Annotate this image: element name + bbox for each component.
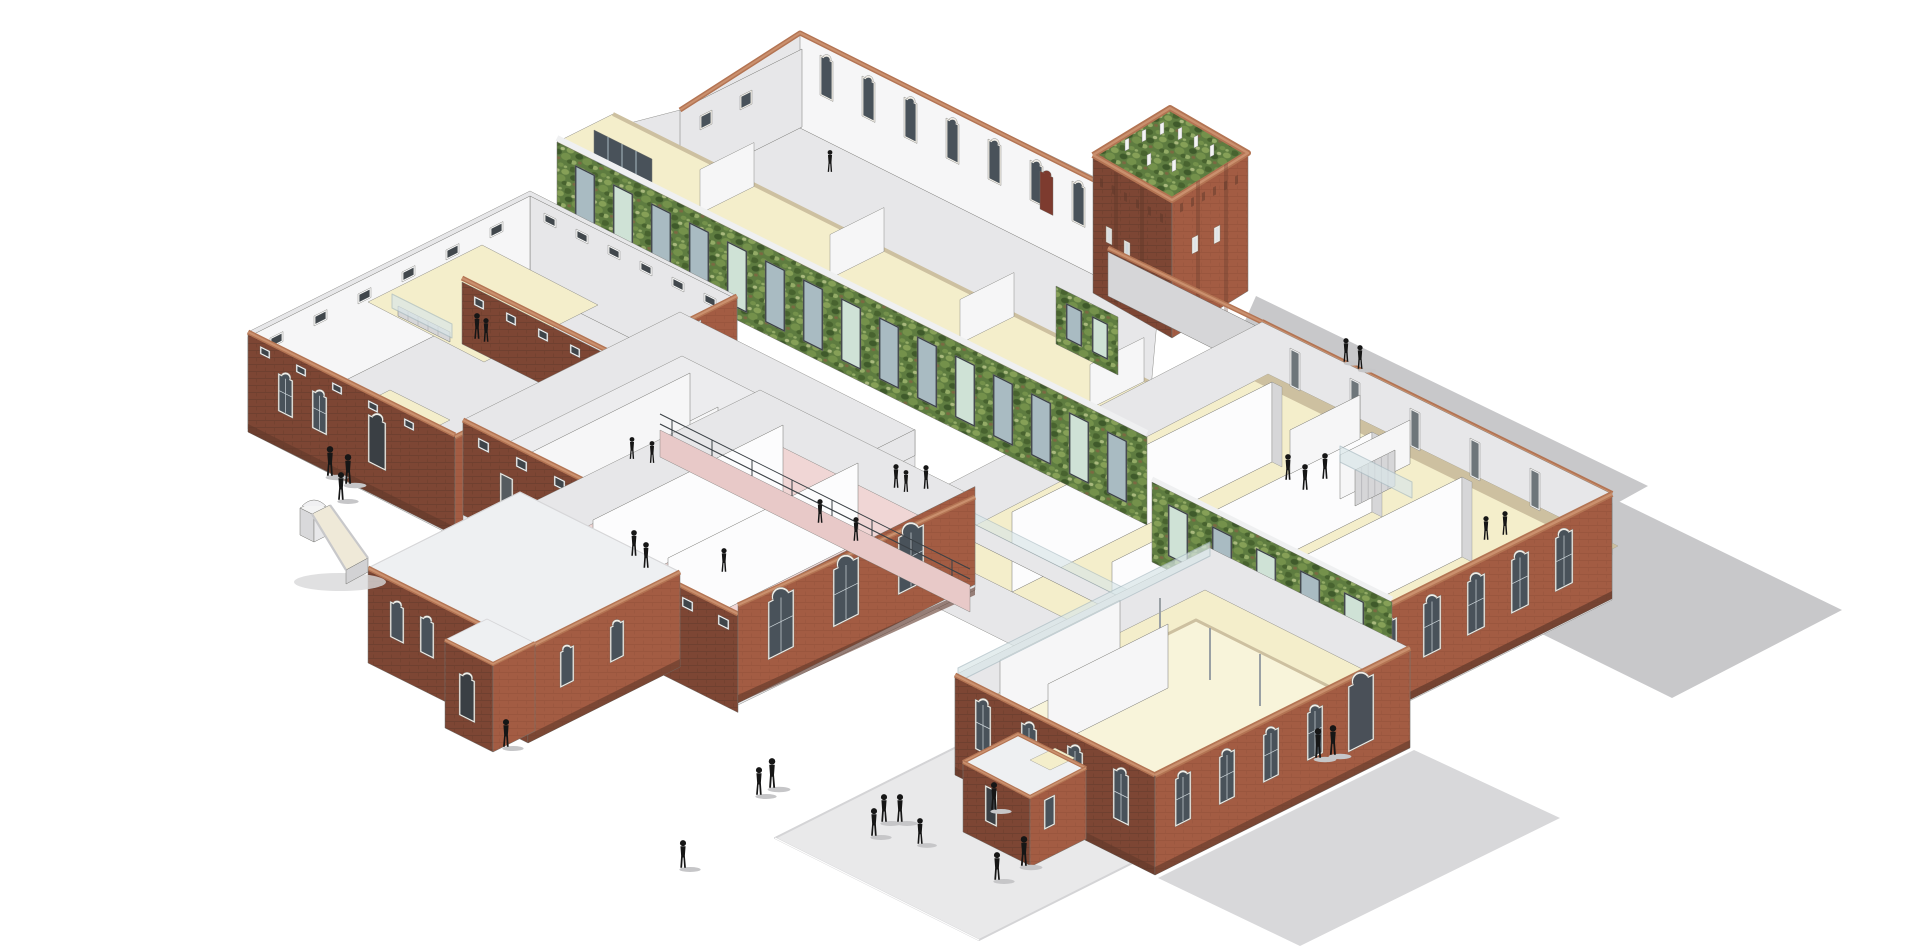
window: [312, 389, 327, 435]
gallery-glazing: [879, 317, 899, 389]
window-glass: [1107, 228, 1110, 243]
gallery-glazing: [993, 374, 1013, 446]
corbel: [1180, 203, 1183, 213]
window-glass: [918, 338, 935, 406]
window-glass: [421, 618, 432, 657]
window-glass: [1041, 173, 1051, 213]
figure-shadow: [326, 475, 349, 480]
figure-shadow: [993, 879, 1014, 884]
window-glass: [391, 603, 402, 642]
inner-door: [1410, 408, 1420, 451]
window-glass: [1073, 183, 1083, 225]
gallery-glazing: [917, 336, 937, 408]
roof-window: [1147, 153, 1151, 166]
figure-shadow: [502, 746, 523, 751]
roof-window: [1178, 127, 1182, 140]
roof-window: [1210, 144, 1214, 157]
corbel: [1160, 213, 1163, 223]
inner-door: [1530, 468, 1540, 511]
figure-shadow: [344, 483, 367, 488]
arched-door: [459, 672, 475, 723]
roof-window: [1142, 129, 1146, 142]
gallery-glazing: [803, 279, 823, 351]
figure-shadow: [755, 794, 776, 799]
window: [1423, 594, 1441, 658]
window-glass: [1471, 440, 1478, 479]
window: [560, 644, 574, 688]
window-glass: [989, 141, 999, 183]
window: [1066, 303, 1082, 347]
figure-shadow: [990, 809, 1011, 814]
window-glass: [842, 300, 859, 368]
figure-shadow: [768, 787, 791, 792]
window-glass: [1108, 433, 1125, 501]
window-glass: [994, 376, 1011, 444]
corbel: [1136, 199, 1139, 209]
window: [1214, 225, 1220, 244]
corbel: [1148, 206, 1151, 216]
figure-shadow: [896, 821, 917, 826]
window: [946, 118, 959, 165]
rendering-canvas: [0, 0, 1920, 949]
corbel: [1124, 192, 1127, 202]
inner-door: [1470, 438, 1480, 481]
tall-arched-window: [833, 555, 859, 628]
window: [1263, 726, 1279, 783]
slide-shadow: [294, 573, 386, 591]
window-glass: [1193, 237, 1196, 252]
figure-shadow: [1329, 754, 1352, 759]
window-glass: [821, 57, 831, 99]
window-glass: [1067, 305, 1080, 345]
corbel: [1224, 181, 1227, 191]
architectural-rendering: [0, 0, 1920, 949]
window: [278, 372, 293, 418]
corbel: [1112, 185, 1115, 195]
partition-end: [1272, 382, 1282, 467]
window-glass: [1093, 318, 1106, 358]
corbel: [1202, 192, 1205, 202]
inner-door: [1290, 348, 1300, 391]
window-glass: [956, 357, 973, 425]
window-glass: [1070, 414, 1087, 482]
window-glass: [766, 262, 783, 330]
window-glass: [947, 120, 957, 162]
figure-shadow: [917, 843, 937, 848]
gallery-glazing: [841, 298, 861, 370]
window-glass: [804, 281, 821, 349]
figure-shadow: [337, 499, 358, 504]
window: [1113, 767, 1129, 826]
corbel: [1100, 178, 1103, 188]
gallery-glazing: [765, 260, 785, 332]
roof-window: [1125, 138, 1129, 151]
partition-end: [1462, 477, 1472, 562]
window-glass: [1045, 797, 1053, 828]
corbel: [1235, 175, 1238, 185]
window-glass: [1215, 227, 1218, 242]
window: [1467, 572, 1485, 636]
window-glass: [369, 416, 384, 469]
roof-window: [1172, 159, 1176, 172]
figure-shadow: [1020, 865, 1043, 870]
gallery-glazing: [1031, 393, 1051, 465]
roof-window: [1194, 135, 1198, 148]
figure-shadow: [1358, 368, 1376, 372]
window-glass: [1291, 350, 1298, 389]
window-glass: [905, 99, 915, 141]
window-glass: [460, 675, 473, 721]
red-door: [1040, 171, 1053, 216]
corbel: [1191, 197, 1194, 207]
roof-window: [1160, 122, 1164, 135]
window: [390, 600, 404, 644]
corbel: [1213, 186, 1216, 196]
window-glass: [1411, 410, 1418, 449]
window: [862, 76, 875, 123]
window: [904, 97, 917, 144]
window: [610, 619, 624, 663]
gallery-glazing: [1107, 431, 1127, 503]
figure-shadow: [679, 867, 700, 872]
window-glass: [880, 319, 897, 387]
window: [1175, 770, 1191, 827]
window: [1092, 316, 1108, 360]
gallery-glazing: [1069, 412, 1089, 484]
window: [1192, 235, 1198, 254]
window: [820, 55, 833, 102]
window-glass: [611, 622, 622, 661]
window: [1072, 181, 1085, 228]
tall-arched-window: [768, 587, 794, 660]
window: [1219, 748, 1235, 805]
window: [1511, 550, 1529, 614]
window-glass: [1531, 470, 1538, 509]
window-glass: [1032, 395, 1049, 463]
figure-shadow: [870, 835, 891, 840]
arched-opening: [1348, 672, 1374, 753]
window: [1044, 795, 1055, 831]
window: [1555, 528, 1573, 592]
window: [420, 615, 434, 659]
window-glass: [863, 78, 873, 120]
gallery-glazing: [955, 355, 975, 427]
entrance-door: [368, 413, 386, 471]
window-glass: [1349, 676, 1372, 751]
window: [1106, 226, 1112, 245]
window-glass: [561, 647, 572, 686]
window: [988, 139, 1001, 186]
